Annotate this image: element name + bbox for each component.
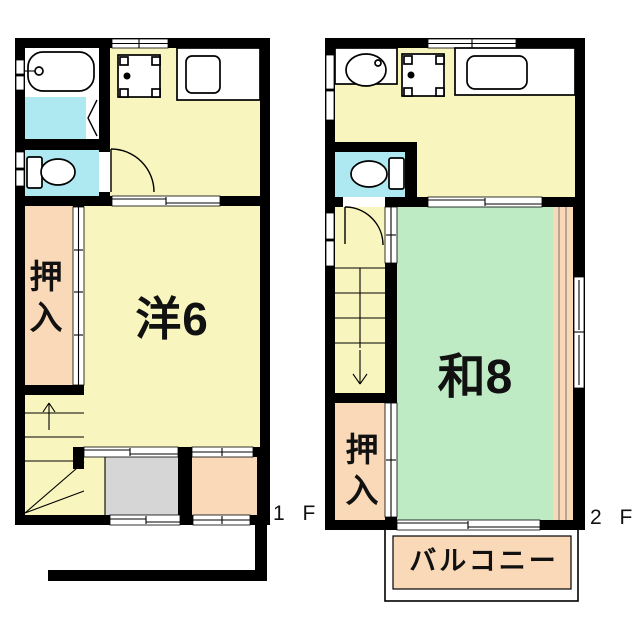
bathtub-icon (25, 52, 94, 91)
room-label-western-6: 洋6 (98, 296, 246, 342)
stove-icon-1f (118, 55, 160, 97)
opening-room-porch-1f (192, 447, 253, 457)
closet-fusuma-1f (73, 207, 84, 385)
sliding-door-kitchen-room-1f (112, 196, 220, 206)
entry-genkan-1f (105, 457, 178, 515)
approach-wall (48, 525, 267, 581)
floor2-label: 2 F (590, 507, 638, 528)
entrance-sliding-door-1f (110, 515, 180, 525)
wall-stub-1f (73, 447, 84, 469)
stove-icon-2f (402, 54, 444, 96)
washroom-1f (25, 97, 86, 139)
porch-room-1f (192, 457, 257, 515)
toilet-side-wall-2f (405, 142, 417, 207)
closet-fusuma-2f (385, 403, 397, 517)
hall-fusuma-2f (385, 207, 397, 263)
room-label-japanese-8: 和8 (396, 354, 554, 402)
toilet-door-opening-2f (343, 197, 385, 207)
window-porch-1f (193, 515, 250, 525)
floorplan-canvas: 洋6 和8 押入 押入 バルコニー 1 F 2 F (0, 0, 640, 640)
floorplan-drawing (0, 0, 640, 640)
hall-1f (84, 457, 105, 515)
window-washroom-left-2f (326, 55, 334, 120)
kitchen-counter-sink-2f (455, 48, 575, 95)
sliding-door-room-genkan-1f (84, 447, 178, 457)
toilet-top-wall-2f (335, 142, 417, 152)
veranda-strip-2f (553, 207, 573, 520)
closet-label-1f: 押入 (27, 252, 60, 348)
floor1-label: 1 F (273, 503, 321, 524)
window-kitchen-top-1f (112, 39, 168, 48)
toilet-door-opening-1f (99, 152, 110, 192)
toilet-icon-2f (351, 158, 404, 189)
balcony-label: バルコニー (398, 548, 570, 575)
window-right-2f (574, 277, 584, 388)
sliding-door-kitchen-room-2f (428, 197, 542, 207)
window-kitchen-top-2f (428, 39, 516, 48)
washbasin-icon-2f (335, 48, 397, 86)
closet-label-2f: 押入 (343, 421, 376, 525)
toilet-icon-1f (27, 157, 75, 188)
kitchen-counter-sink-1f (177, 48, 260, 100)
balcony-sliding-door-2f (397, 520, 540, 530)
